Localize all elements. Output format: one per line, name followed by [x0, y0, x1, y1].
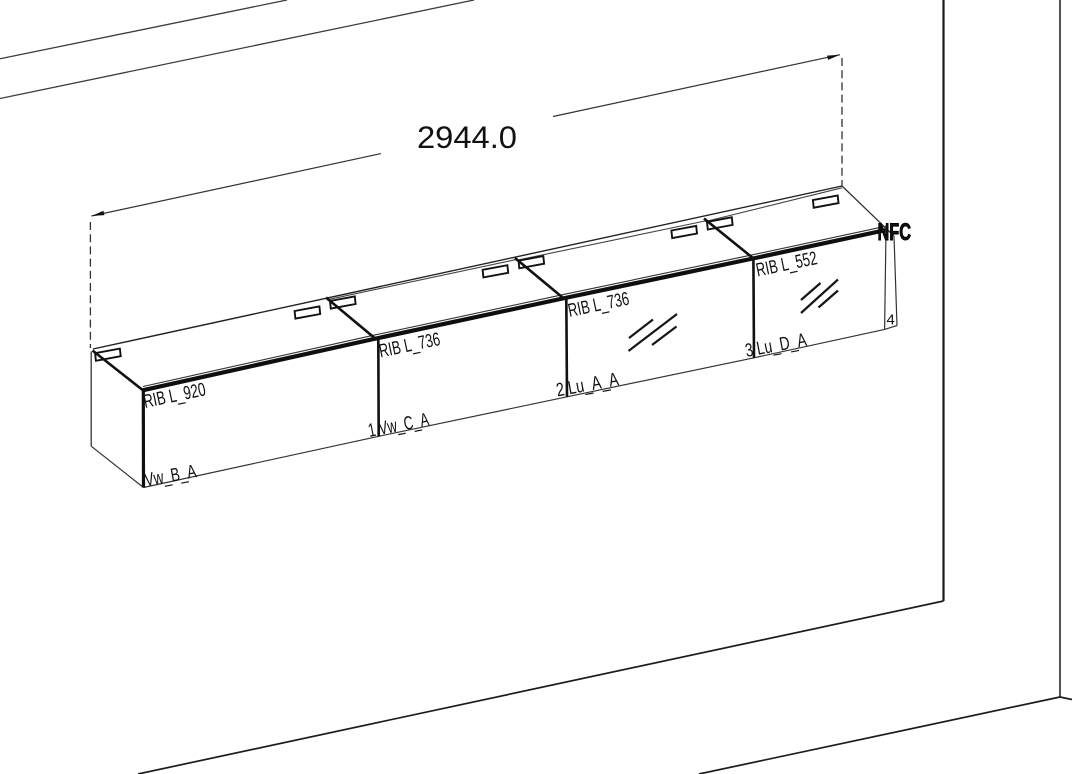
svg-text:4: 4 — [887, 312, 895, 329]
svg-text:2944.0: 2944.0 — [417, 119, 517, 155]
svg-text:NFC: NFC — [878, 219, 912, 246]
